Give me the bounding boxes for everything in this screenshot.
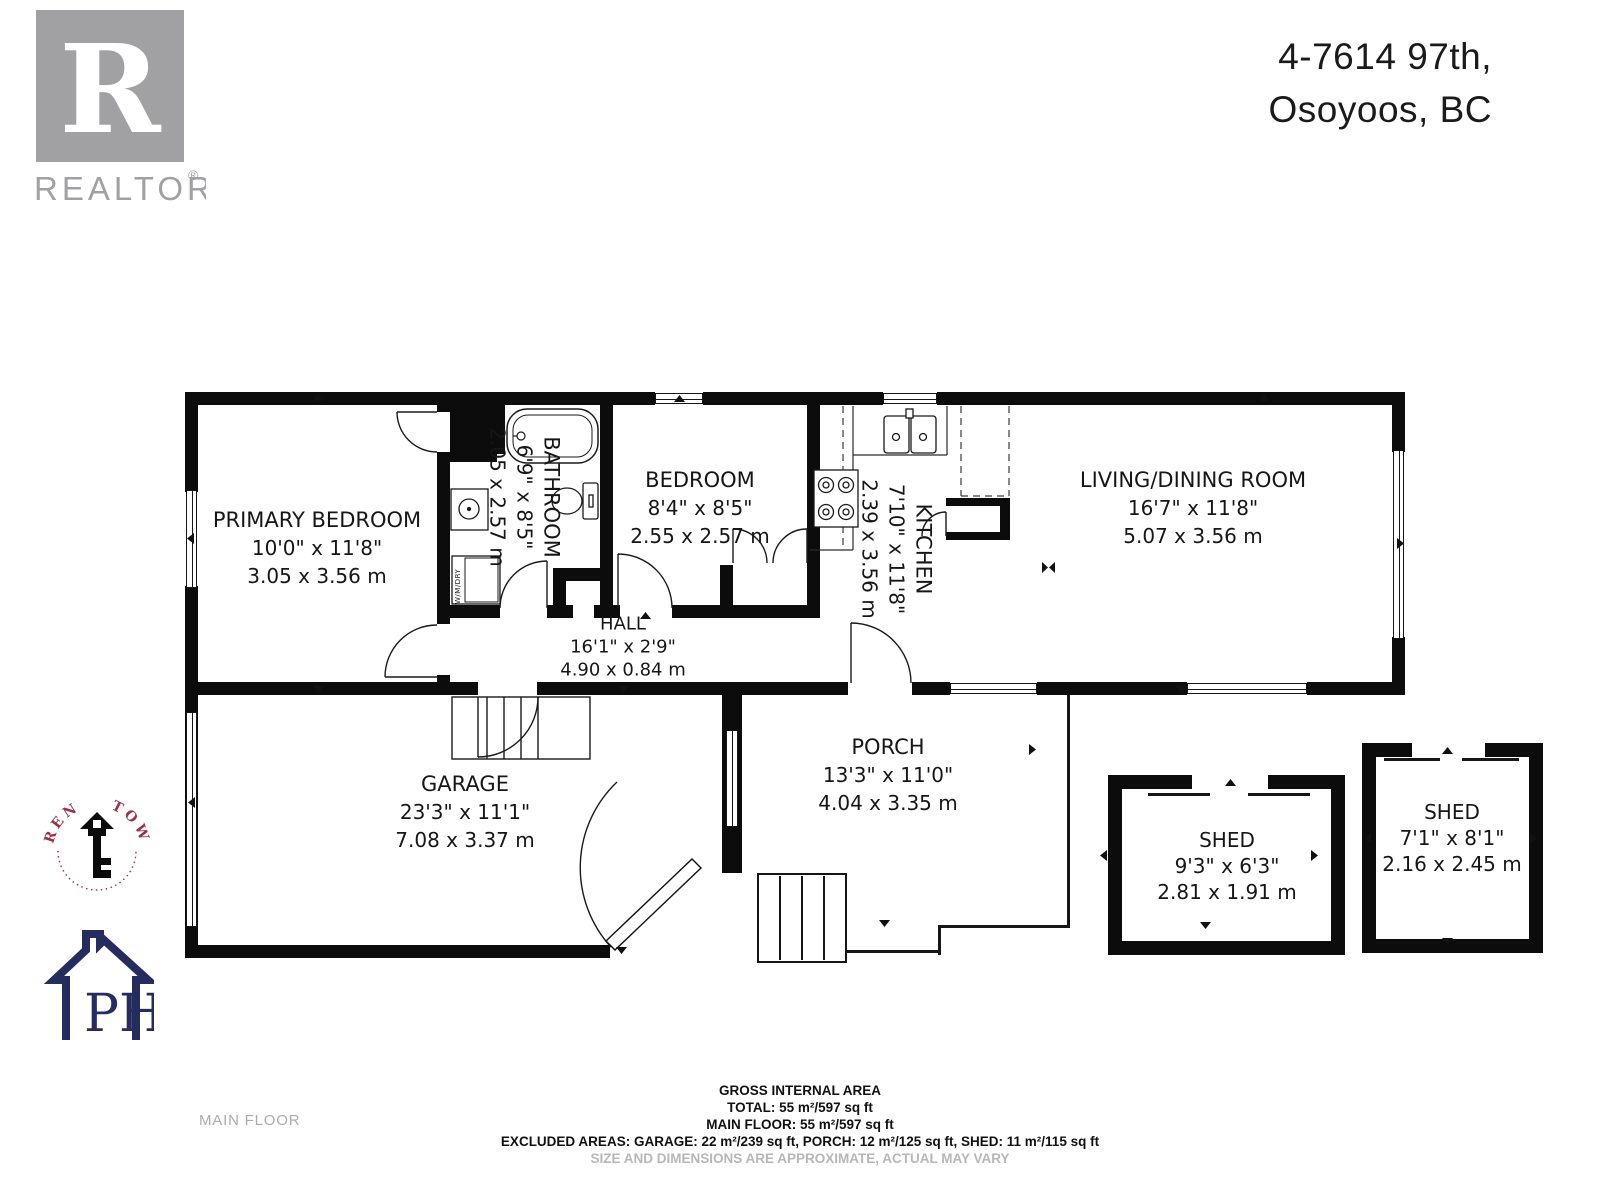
ph-logo-icon: PH	[42, 918, 154, 1043]
room-label-shed-2: SHED 7'1" x 8'1" 2.16 x 2.45 m	[1382, 799, 1521, 877]
arrow-up-icon	[1442, 747, 1453, 754]
arrow-right-icon	[1311, 850, 1318, 861]
shed1-wall	[1331, 775, 1345, 955]
kitchen-sink-icon	[884, 409, 936, 453]
room-label-shed-1: SHED 9'3" x 6'3" 2.81 x 1.91 m	[1157, 827, 1296, 905]
address-line-1: 4-7614 97th,	[1269, 30, 1492, 83]
property-address: 4-7614 97th, Osoyoos, BC	[1269, 30, 1492, 136]
lauren-towers-logo: LAUREN TOWERS	[36, 790, 158, 916]
bowtie-marker-icon	[1049, 562, 1055, 573]
excluded-areas: EXCLUDED AREAS: GARAGE: 22 m²/239 sq ft,…	[501, 1133, 1099, 1150]
wall	[1392, 392, 1405, 452]
realtor-logo-icon: R REALTOR ®	[36, 10, 206, 210]
wall	[720, 565, 733, 618]
wall	[437, 392, 450, 412]
shed1-wall	[1108, 775, 1122, 955]
wall	[703, 392, 883, 405]
arrow-down-icon	[616, 947, 627, 954]
area-summary: GROSS INTERNAL AREA TOTAL: 55 m²/597 sq …	[501, 1082, 1099, 1167]
shed2-door-track	[1384, 758, 1440, 761]
ph-logo: PH	[42, 918, 154, 1047]
wall	[185, 945, 610, 958]
garage-stairs-icon	[452, 697, 590, 759]
room-label-bathroom: BATHROOM 6'9" x 8'5" 2.05 x 2.57 m	[484, 427, 565, 566]
wall	[1037, 682, 1187, 695]
realtor-registered-mark: ®	[188, 167, 199, 183]
key-icon	[80, 812, 114, 878]
lauren-towers-logo-icon: LAUREN TOWERS	[36, 790, 158, 912]
arrow-down-icon	[879, 920, 890, 927]
room-label-primary-bedroom: PRIMARY BEDROOM 10'0" x 11'8" 3.05 x 3.5…	[213, 506, 421, 590]
disclaimer: SIZE AND DIMENSIONS ARE APPROXIMATE, ACT…	[501, 1150, 1099, 1167]
wall	[437, 452, 450, 624]
arrow-up-icon	[1225, 779, 1236, 786]
wall	[185, 392, 198, 492]
door-arc	[478, 697, 538, 757]
wall	[185, 682, 478, 695]
arrow-right-icon	[1029, 744, 1036, 755]
total-area: TOTAL: 55 m²/597 sq ft	[501, 1099, 1099, 1116]
floor-plan-page: R REALTOR ® 4-7614 97th, Osoyoos, BC	[0, 0, 1600, 1200]
window	[726, 730, 738, 827]
door-arc	[580, 782, 617, 947]
wall	[185, 392, 655, 405]
room-label-bedroom: BEDROOM 8'4" x 8'5" 2.55 x 2.57 m	[630, 466, 769, 550]
door-arc	[385, 625, 437, 677]
room-label-porch: PORCH 13'3" x 11'0" 4.04 x 3.35 m	[818, 733, 957, 817]
shed2-wall	[1362, 743, 1376, 953]
main-floor-area: MAIN FLOOR: 55 m²/597 sq ft	[501, 1116, 1099, 1133]
room-label-living-dining: LIVING/DINING ROOM 16'7" x 11'8" 5.07 x …	[1080, 466, 1306, 550]
shed1-door-track	[1248, 793, 1310, 796]
shed1-door-track	[1148, 793, 1210, 796]
wall	[600, 405, 613, 572]
window	[883, 393, 937, 404]
shed2-wall	[1529, 743, 1543, 953]
shed2-wall	[1362, 939, 1543, 953]
wall	[1392, 637, 1405, 695]
closet-door-arc	[773, 529, 807, 563]
gross-internal-area-title: GROSS INTERNAL AREA	[501, 1082, 1099, 1099]
entry-door-leaf	[606, 859, 701, 950]
pantry-opening	[946, 506, 956, 532]
room-label-garage: GARAGE 23'3" x 11'1" 7.08 x 3.37 m	[395, 770, 534, 854]
porch-step-edge	[845, 950, 941, 953]
door-arc	[397, 412, 437, 452]
porch-wall	[938, 925, 1070, 928]
wall	[1307, 682, 1405, 695]
window	[655, 393, 703, 404]
wall	[912, 682, 950, 695]
room-label-hall: HALL 16'1" x 2'9" 4.90 x 0.84 m	[560, 613, 686, 682]
window	[1187, 683, 1307, 694]
window	[1393, 450, 1404, 639]
wall	[185, 586, 198, 695]
stove-icon	[814, 470, 858, 527]
window	[950, 683, 1037, 694]
floor-name-label: MAIN FLOOR	[199, 1112, 300, 1129]
room-label-kitchen: KITCHEN 7'10" x 11'8" 2.39 x 3.56 m	[856, 479, 937, 618]
pantry-interior	[956, 506, 1000, 532]
plan-graphics	[0, 0, 1600, 1200]
bathroom-sink-icon	[451, 489, 488, 530]
porch-steps-icon	[758, 874, 846, 962]
window	[186, 490, 197, 588]
bowtie-marker-icon	[1042, 562, 1048, 573]
washer-dryer-label: W/M/DRY	[454, 558, 466, 604]
wall	[537, 682, 848, 695]
door-arc	[851, 623, 911, 683]
wall	[937, 392, 1405, 405]
realtor-logo: R REALTOR ®	[36, 10, 206, 214]
address-line-2: Osoyoos, BC	[1269, 83, 1492, 136]
arrow-down-icon	[1200, 922, 1211, 929]
porch-wall	[1067, 695, 1070, 928]
realtor-letter-r: R	[59, 17, 162, 161]
shed2-door-track	[1462, 758, 1519, 761]
wall	[437, 675, 450, 695]
arrow-left-icon	[1100, 850, 1107, 861]
realtor-wordmark: REALTOR	[36, 170, 206, 207]
garage-door	[186, 712, 197, 927]
door-arc	[500, 561, 547, 608]
wall	[437, 605, 500, 618]
door-arc	[618, 554, 672, 608]
ph-letters: PH	[84, 984, 154, 1043]
wall	[672, 605, 820, 618]
shed1-wall	[1108, 941, 1345, 955]
wall	[807, 405, 820, 618]
